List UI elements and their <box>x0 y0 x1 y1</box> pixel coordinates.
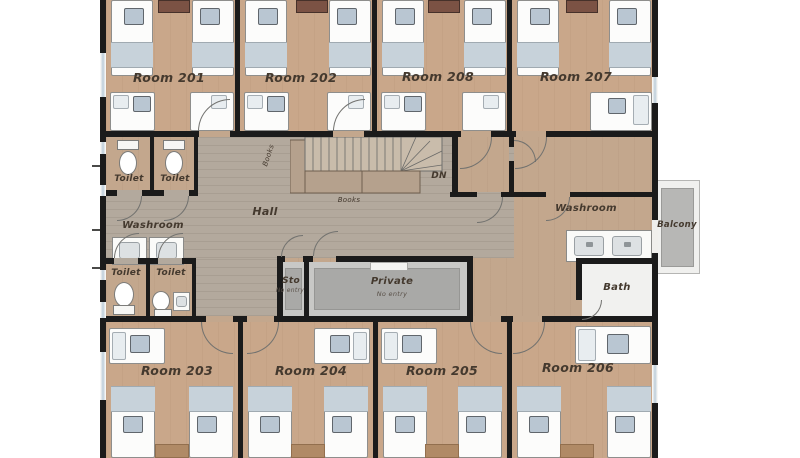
toilet-label: Toilet <box>154 175 196 184</box>
nightstand <box>337 8 357 25</box>
pillow <box>353 332 367 360</box>
dimension-tick <box>92 229 100 231</box>
nightstand <box>133 96 151 112</box>
toilet-tank <box>113 305 135 315</box>
pillow <box>483 95 499 109</box>
toilet-bowl <box>165 151 183 175</box>
desk <box>428 0 460 13</box>
room-201-label: Room 201 <box>133 72 203 85</box>
window <box>100 53 106 97</box>
toilet-bowl <box>152 291 170 311</box>
washroom-left-label: Washroom <box>117 221 189 231</box>
toilet-label: Toilet <box>104 269 148 278</box>
wall-bath-left <box>576 258 582 300</box>
wall-washroom-top <box>570 192 652 197</box>
toilet-bowl <box>119 151 137 175</box>
door-opening-room202 <box>333 131 364 137</box>
wall-private-top <box>336 256 473 262</box>
dimension-tick <box>92 165 100 167</box>
nightstand <box>404 96 422 112</box>
nightstand <box>395 8 415 25</box>
staircase <box>290 137 458 194</box>
nightstand <box>615 416 635 433</box>
blanket <box>382 42 424 68</box>
washroom-right-label: Washroom <box>549 204 623 214</box>
nightstand <box>466 416 486 433</box>
rug <box>425 444 459 458</box>
wall-corridor-bottom <box>100 316 658 322</box>
pillow <box>578 329 596 361</box>
nightstand <box>267 96 285 112</box>
wall-divider <box>238 322 243 458</box>
books-label: Books <box>330 197 368 204</box>
dimension-tick <box>92 267 100 269</box>
bath-label: Bath <box>597 283 637 293</box>
toilet-tank <box>163 140 185 150</box>
rug <box>560 444 594 458</box>
wall-vestibule-right <box>509 161 514 194</box>
blanket <box>383 386 427 412</box>
room-204-label: Room 204 <box>275 365 345 378</box>
floor-rooms-top <box>106 0 652 131</box>
nightstand <box>258 8 278 25</box>
nightstand <box>472 8 492 25</box>
desk <box>158 0 190 13</box>
wall-bath-top <box>576 258 652 264</box>
nightstand <box>332 416 352 433</box>
blanket <box>517 42 559 68</box>
pillow <box>247 95 263 109</box>
nightstand <box>530 8 550 25</box>
blanket <box>607 386 651 412</box>
blanket <box>609 42 651 68</box>
blanket <box>464 42 506 68</box>
floor-rooms-bottom <box>106 322 652 458</box>
wall-toiletA-right <box>194 137 198 196</box>
wall-divider <box>372 0 377 131</box>
rug <box>155 444 189 458</box>
pillow <box>633 95 649 125</box>
window <box>100 185 106 196</box>
pillow <box>384 332 398 360</box>
pillow <box>384 95 400 109</box>
blanket <box>111 42 153 68</box>
hall-floor-lower <box>196 258 277 316</box>
private-recess <box>370 262 408 271</box>
toilet-bowl <box>114 282 134 307</box>
blanket <box>189 386 233 412</box>
blanket <box>329 42 371 68</box>
wall-private-right <box>467 256 473 322</box>
wall-toiletB-right <box>192 258 196 322</box>
balcony-label: Balcony <box>654 221 700 230</box>
sink-basin <box>176 296 187 307</box>
nightstand <box>330 335 350 353</box>
room-205-label: Room 205 <box>406 365 476 378</box>
wall-stair-right <box>452 137 458 194</box>
storage-no-entry-label: No entry <box>272 288 308 294</box>
hall-label: Hall <box>243 206 287 217</box>
blanket <box>111 386 155 412</box>
blanket <box>458 386 502 412</box>
blanket <box>324 386 368 412</box>
wall-divider <box>507 322 512 458</box>
private-label: Private <box>360 277 424 287</box>
wall-divider <box>507 0 512 131</box>
stairs-down-label: DN <box>426 172 452 181</box>
nightstand <box>608 98 626 114</box>
storage-label: Sto <box>278 277 304 286</box>
nightstand <box>402 335 422 353</box>
nightstand <box>123 416 143 433</box>
private-room-inner <box>314 268 460 310</box>
pillow <box>113 95 129 109</box>
nightstand <box>260 416 280 433</box>
wall-divider <box>373 322 378 458</box>
wall-divider <box>235 0 240 131</box>
blanket <box>517 386 561 412</box>
wall-corridor-top <box>100 131 658 137</box>
toilet-label: Toilet <box>150 269 192 278</box>
nightstand <box>607 334 629 354</box>
private-no-entry-label: No entry <box>368 291 416 298</box>
nightstand <box>130 335 150 353</box>
door-opening-toilet <box>114 258 138 264</box>
window <box>100 302 106 318</box>
blanket <box>248 386 292 412</box>
window <box>100 352 106 400</box>
window <box>652 77 658 103</box>
wall-washroom-top <box>514 192 546 197</box>
desk <box>296 0 328 13</box>
window <box>100 142 106 154</box>
nightstand <box>529 416 549 433</box>
rug <box>291 444 325 458</box>
room-203-label: Room 203 <box>141 365 211 378</box>
window <box>652 365 658 403</box>
door-opening-toilet <box>158 258 182 264</box>
blanket <box>245 42 287 68</box>
room-202-label: Room 202 <box>265 72 335 85</box>
nightstand <box>200 8 220 25</box>
faucet <box>586 242 593 247</box>
room-208-label: Room 208 <box>402 71 472 84</box>
room-206-label: Room 206 <box>542 362 612 375</box>
toilet-tank <box>117 140 139 150</box>
desk <box>566 0 598 13</box>
blanket <box>192 42 234 68</box>
floor-plan-canvas: Room 201 Room 202 Room 208 Room 207 Room… <box>0 0 800 458</box>
nightstand <box>124 8 144 25</box>
nightstand <box>617 8 637 25</box>
room-207-label: Room 207 <box>540 71 610 84</box>
pillow <box>112 332 126 360</box>
nightstand <box>197 416 217 433</box>
door-opening-room201 <box>199 131 230 137</box>
nightstand <box>395 416 415 433</box>
toilet-label: Toilet <box>107 175 151 184</box>
faucet <box>624 242 631 247</box>
